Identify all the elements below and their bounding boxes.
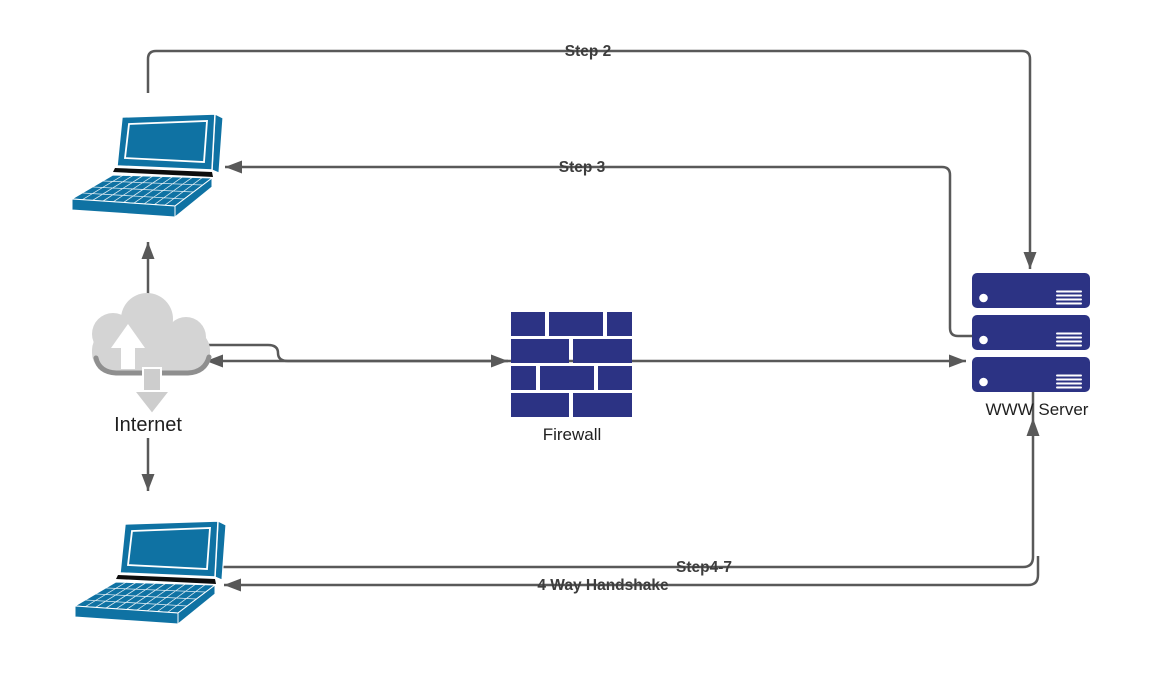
step2-label: Step 2 bbox=[565, 43, 612, 60]
step4-7-up-arrowhead-icon bbox=[1027, 418, 1040, 436]
server-stack-icon bbox=[972, 273, 1090, 392]
edge-internet-to-firewall-line bbox=[200, 345, 508, 361]
internet-label: Internet bbox=[114, 414, 182, 436]
step4-7-label: Step4-7 bbox=[676, 559, 732, 576]
diagram-page: Internet Firewall WWW Server Step 2 Step bbox=[0, 0, 1163, 695]
edge-step4-7-line bbox=[222, 392, 1033, 567]
firewall-brick-icon bbox=[511, 312, 632, 417]
firewall-node: Firewall bbox=[511, 312, 632, 444]
laptop-bottom-node bbox=[75, 521, 226, 624]
www-server-node: WWW Server bbox=[972, 273, 1090, 419]
network-diagram-canvas: Internet Firewall WWW Server Step 2 Step bbox=[0, 0, 1163, 695]
step3-label: Step 3 bbox=[559, 159, 606, 176]
internet-cloud-node: Internet bbox=[92, 293, 210, 436]
www-server-label: WWW Server bbox=[986, 400, 1089, 419]
cloud-icon bbox=[92, 293, 210, 414]
edge-step3-line bbox=[225, 167, 972, 336]
firewall-label: Firewall bbox=[543, 425, 602, 444]
handshake-label: 4 Way Handshake bbox=[537, 577, 669, 594]
laptop-top-node bbox=[72, 114, 223, 217]
